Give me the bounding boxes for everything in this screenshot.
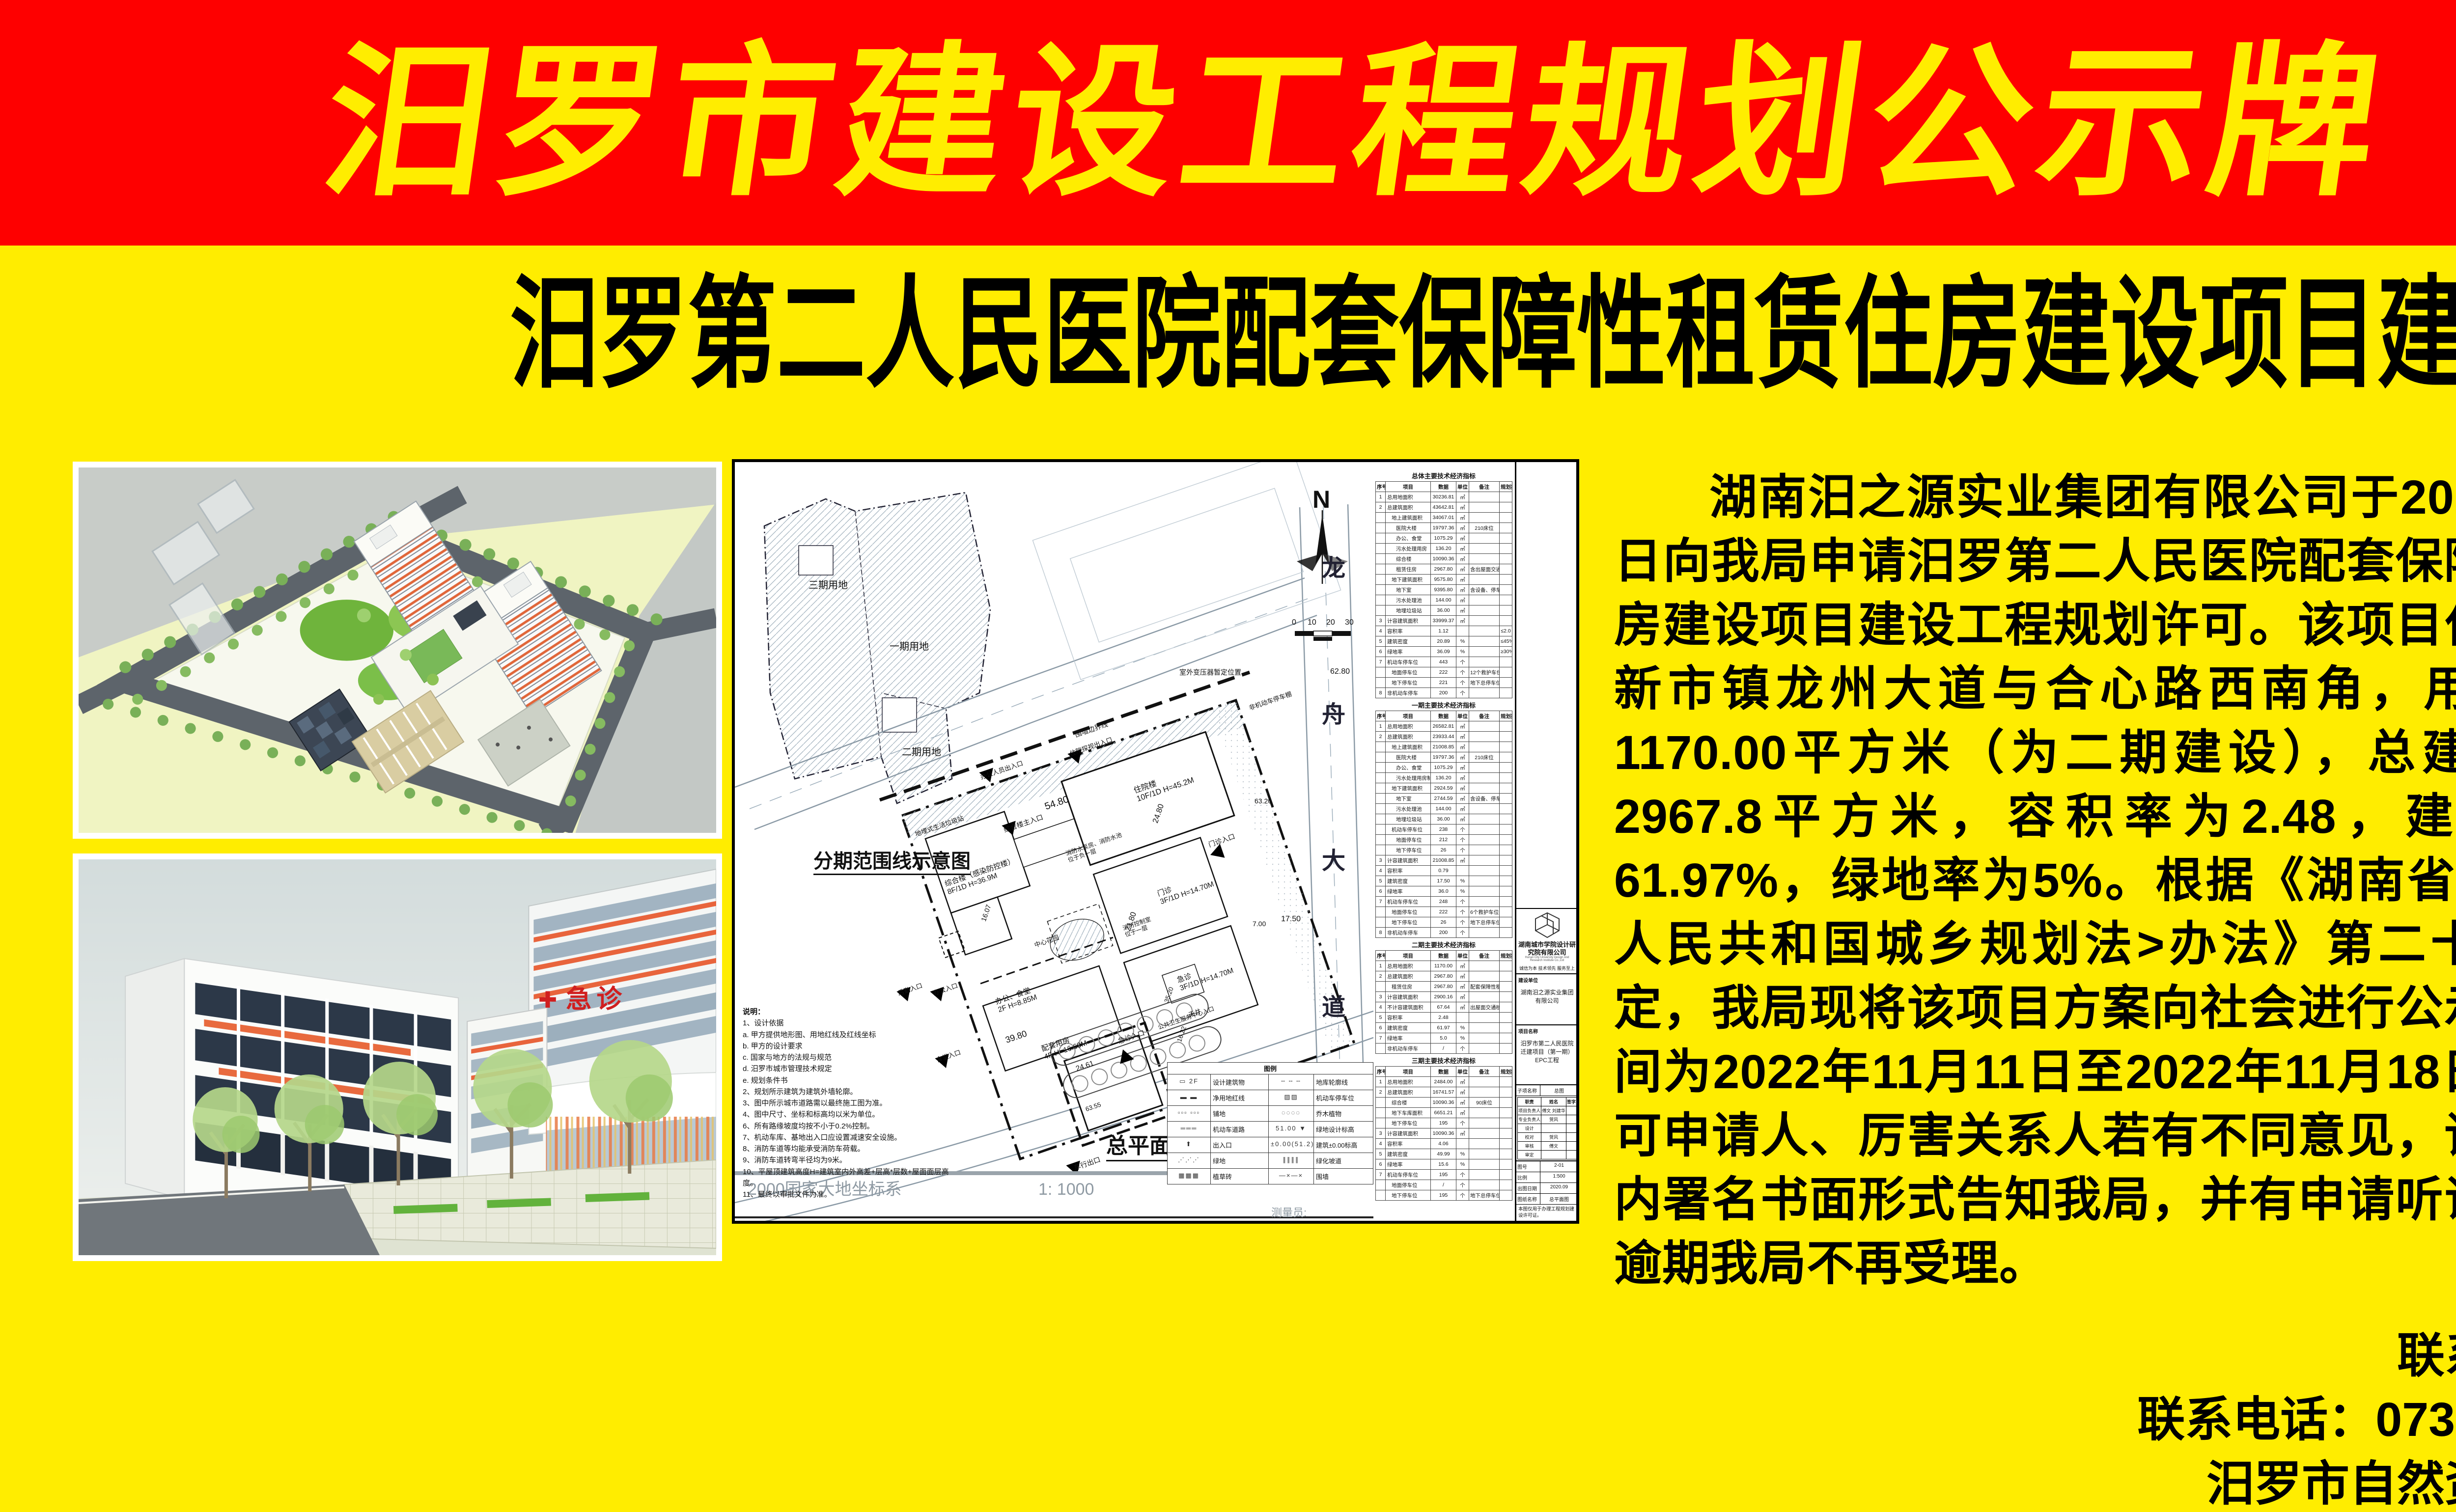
indicator-cell	[1469, 657, 1500, 667]
plan-annotation: 30	[1345, 618, 1354, 627]
indicator-row: 地下停车位26个	[1376, 845, 1512, 855]
sign-cell: 设计	[1518, 1124, 1541, 1133]
road-name-longzhou-avenue: 龙舟大道	[1313, 555, 1348, 1141]
indicator-cell	[1469, 1023, 1500, 1033]
indicator-cell: 地埋垃圾站	[1386, 814, 1431, 825]
indicator-cell	[1500, 961, 1512, 971]
indicator-cell: 地面停车位	[1386, 1180, 1431, 1190]
title-block-note: 本图仅用于办理工程规划建设许可证。	[1516, 1205, 1578, 1221]
indicator-row: 3计容建筑面积10090.36㎡	[1376, 1128, 1512, 1139]
indicator-cell	[1500, 605, 1512, 616]
indicator-cell: ㎡	[1456, 1108, 1469, 1118]
indicator-row: 地下车库面积6651.21㎡	[1376, 1108, 1512, 1118]
indicator-row: 2总建筑面积2967.80㎡	[1376, 971, 1512, 982]
legend-label: 绿地设计标高	[1314, 1122, 1373, 1137]
indicator-row: 地埋垃圾站36.00㎡	[1376, 814, 1512, 825]
indicator-cell	[1500, 825, 1512, 835]
indicator-cell	[1376, 907, 1386, 917]
indicator-cell	[1469, 688, 1500, 698]
legend-row: ⬆出入口±0.00(51.2)▽建筑±0.00标高	[1168, 1137, 1373, 1153]
indicator-cell	[1469, 544, 1500, 554]
indicator-cell: 计容建筑面积	[1386, 855, 1431, 866]
indicator-header: 数据	[1431, 711, 1456, 721]
indicator-cell: 容积率	[1386, 626, 1431, 636]
legend-symbol: ╌ ╌ ╌	[1269, 1074, 1314, 1090]
plan-note-line: 10、平屋顶建筑高度H=建筑室内外高差+层高*层数+屋面面层高度。	[743, 1166, 949, 1189]
indicator-cell: 1	[1376, 961, 1386, 971]
plan-note-line: 2、规划所示建筑为建筑外墙轮廓。	[743, 1086, 949, 1098]
red-cross-icon: ✚	[538, 987, 562, 1013]
indicator-cell	[1469, 1128, 1500, 1139]
indicator-cell: 5	[1376, 876, 1386, 886]
title-block-spacer	[1516, 462, 1578, 909]
indicator-cell: ㎡	[1456, 1098, 1469, 1108]
indicator-cell: 2.48	[1431, 1013, 1456, 1023]
indicator-cell: 36.00	[1431, 814, 1456, 825]
indicator-cell: 248	[1431, 897, 1456, 907]
indicator-cell: 2	[1376, 502, 1386, 513]
indicator-cell: 绿地率	[1386, 1159, 1431, 1170]
indicator-cell	[1376, 595, 1386, 605]
legend-label: 植草砖	[1211, 1169, 1269, 1184]
indicator-header: 备注	[1469, 482, 1500, 492]
indicator-cell: 容积率	[1386, 1139, 1431, 1149]
sign-cell	[1541, 1151, 1566, 1159]
indicator-cell: 2	[1376, 971, 1386, 982]
indicator-cell	[1500, 544, 1512, 554]
indicator-cell	[1376, 773, 1386, 783]
indicator-cell	[1500, 564, 1512, 575]
indicator-header: 备注	[1469, 711, 1500, 721]
indicator-cell	[1469, 1170, 1500, 1180]
indicator-cell: 污水处理池	[1386, 595, 1431, 605]
indicator-header: 序号	[1376, 951, 1386, 961]
indicator-row: 6建筑密度61.97%	[1376, 1023, 1512, 1033]
indicator-cell: 医院大楼	[1386, 752, 1431, 763]
indicator-cell: 总建筑面积	[1386, 502, 1431, 513]
indicator-cell: /	[1431, 1180, 1456, 1190]
indicator-cell	[1500, 876, 1512, 886]
indicator-cell	[1500, 554, 1512, 564]
indicator-cell: 238	[1431, 825, 1456, 835]
indicator-cell	[1376, 845, 1386, 855]
indicator-cell: 20.89	[1431, 636, 1456, 647]
indicator-header: 单位	[1456, 951, 1469, 961]
subtitle-text: 汨罗第二人民医院配套保障性租赁住房建设项目建设工程规划批前公示	[510, 264, 2456, 404]
indicator-cell: 计容建筑面积	[1386, 992, 1431, 1002]
sign-cell	[1566, 1142, 1576, 1151]
plan-note-line: b. 甲方的设计要求	[743, 1041, 949, 1052]
indicator-cell: 1075.29	[1431, 533, 1456, 544]
sheet-info-label: 图号	[1516, 1161, 1540, 1172]
indicator-cell: 4.06	[1431, 1139, 1456, 1149]
aerial-rendering-image	[73, 462, 722, 839]
indicator-cell: 个	[1456, 1180, 1469, 1190]
indicator-cell	[1500, 992, 1512, 1002]
indicator-cell: ㎡	[1456, 585, 1469, 595]
indicator-cell: ㎡	[1456, 605, 1469, 616]
indicator-cell: 144.00	[1431, 595, 1456, 605]
sign-cell: 傅文	[1541, 1142, 1566, 1151]
plan-note-line: 7、机动车库、基地出入口应设置减速安全设施。	[743, 1132, 949, 1143]
notice-text-block: 湖南汨之源实业集团有限公司于2022年11月9日向我局申请汨罗第二人民医院配套保…	[1614, 466, 2456, 1512]
indicator-row: 地上建筑面积34067.01㎡	[1376, 513, 1512, 523]
sheet-info-label: 图纸名称	[1516, 1194, 1540, 1204]
indicator-cell: %	[1456, 1159, 1469, 1170]
sheet-info-value: 2020.09	[1540, 1183, 1578, 1193]
indicator-cell: 43642.81	[1431, 502, 1456, 513]
sheet-info-value: 总平面图	[1540, 1194, 1578, 1204]
indicator-cell: 5.0	[1431, 1033, 1456, 1044]
indicator-cell: 地下停车位	[1386, 845, 1431, 855]
indicator-row: 6绿地率36.0%	[1376, 886, 1512, 897]
design-institute-cell: 湖南城市学院设计研究院有限公司 Hunan City University De…	[1516, 909, 1578, 974]
indicator-cell: 210床位	[1469, 752, 1500, 763]
indicator-cell: ㎡	[1456, 992, 1469, 1002]
plan-note-line: d. 汨罗市城市管理技术规定	[743, 1063, 949, 1074]
plan-legend: 图例 ▭ 2F设计建筑物╌ ╌ ╌地库轮廓线▬ ▬净用地红线▨▨机动车停车位▫▫…	[1167, 1062, 1373, 1184]
indicator-cell	[1469, 1087, 1500, 1098]
indicator-row: 地面停车位/个	[1376, 1180, 1512, 1190]
indicator-cell: 3	[1376, 992, 1386, 1002]
legend-label: 机动车停车位	[1314, 1090, 1373, 1105]
indicator-cell: 200	[1431, 928, 1456, 938]
legend-label: 地库轮廓线	[1314, 1074, 1373, 1090]
indicator-cell: 个	[1456, 688, 1469, 698]
indicator-cell: ㎡	[1456, 1077, 1469, 1087]
indicator-cell	[1469, 721, 1500, 732]
indicator-row: 5建筑密度49.99%	[1376, 1149, 1512, 1159]
indicator-cell: ㎡	[1456, 575, 1469, 585]
indicator-row: 7绿地率5.0%	[1376, 1033, 1512, 1044]
indicator-row: 医院大楼19797.36㎡210床位	[1376, 752, 1512, 763]
indicator-cell	[1469, 804, 1500, 814]
indicator-cell	[1469, 928, 1500, 938]
indicator-cell: ㎡	[1456, 502, 1469, 513]
indicator-cell: 非机动车停车	[1386, 928, 1431, 938]
sheet-info-row: 图号2-01	[1516, 1161, 1578, 1172]
indicator-cell: 地下停车位	[1386, 678, 1431, 688]
indicator-cell: 195	[1431, 1118, 1456, 1128]
sheet-info-row: 比例1:500	[1516, 1172, 1578, 1183]
contact-block: 联系人：吴乐 联系电话：0730-5244129 汨罗市自然资源局监制	[1614, 1328, 2456, 1512]
indicator-cell	[1469, 897, 1500, 907]
indicator-cell: 17.50	[1431, 876, 1456, 886]
plan-annotation: 10	[1308, 618, 1316, 627]
indicator-cell	[1469, 1139, 1500, 1149]
indicator-row: 办公、食堂1075.29㎡	[1376, 533, 1512, 544]
indicator-cell: 36.0	[1431, 886, 1456, 897]
indicator-cell: 6个救护车位	[1469, 907, 1500, 917]
indicator-cell: 212	[1431, 835, 1456, 845]
indicator-cell: 医院大楼	[1386, 523, 1431, 533]
indicator-cell	[1469, 626, 1500, 636]
indicator-header: 单位	[1456, 1067, 1469, 1077]
sign-cell	[1541, 1124, 1566, 1133]
sign-cell: 校对	[1518, 1133, 1541, 1142]
indicator-cell	[1469, 971, 1500, 982]
indicator-row: 污水处理用房制氧机房136.20㎡	[1376, 773, 1512, 783]
indicator-cell	[1456, 1013, 1469, 1023]
indicator-cell	[1376, 1190, 1386, 1201]
subitem-value: 总图	[1540, 1085, 1578, 1096]
indicator-cell	[1500, 1098, 1512, 1108]
indicator-cell	[1376, 523, 1386, 533]
indicator-cell	[1469, 1118, 1500, 1128]
indicator-cell: 地下总停车位	[1469, 1190, 1500, 1201]
indicator-cell: 2	[1376, 732, 1386, 742]
indicator-cell: %	[1456, 1033, 1469, 1044]
indicator-cell: 地下建筑面积	[1386, 575, 1431, 585]
indicator-cell	[1469, 886, 1500, 897]
indicator-cell: 个	[1456, 897, 1469, 907]
indicator-cell	[1469, 647, 1500, 657]
indicator-row: 地下室2744.59㎡含设备、停车库	[1376, 794, 1512, 804]
indicator-cell: ㎡	[1456, 492, 1469, 502]
indicator-cell: 非机动车停车	[1386, 688, 1431, 698]
indicator-header: 序号	[1376, 711, 1386, 721]
indicator-header: 数据	[1431, 1067, 1456, 1077]
indicator-row: 6绿地率15.6%	[1376, 1159, 1512, 1170]
sign-cell: 专业负责人	[1518, 1115, 1541, 1124]
indicator-cell	[1469, 554, 1500, 564]
indicator-cell	[1500, 1077, 1512, 1087]
indicator-row: 地面停车位212个	[1376, 835, 1512, 845]
indicator-cell: ㎡	[1456, 752, 1469, 763]
indicator-cell	[1500, 866, 1512, 876]
indicator-cell: 地下停车位	[1386, 917, 1431, 928]
indicator-cell: ≥30%	[1500, 647, 1512, 657]
plan-annotation: 63.20	[1255, 797, 1272, 805]
sign-row: 审定	[1518, 1151, 1577, 1159]
indicator-cell: 个	[1456, 667, 1469, 678]
indicator-cell	[1500, 678, 1512, 688]
indicator-cell: 地埋垃圾站	[1386, 605, 1431, 616]
indicator-cell	[1469, 855, 1500, 866]
indicator-cell: 23933.44	[1431, 732, 1456, 742]
indicator-cell	[1469, 533, 1500, 544]
indicator-row: 1总用地面积1170.00㎡	[1376, 961, 1512, 971]
indicator-row: 1总用地面积30236.81㎡	[1376, 492, 1512, 502]
sheet-info-label: 出图日期	[1516, 1183, 1540, 1193]
legend-row: ═══机动车道路51.00 ▼绿地设计标高	[1168, 1122, 1373, 1137]
legend-label: 机动车道路	[1211, 1122, 1269, 1137]
aerial-rendering-graphic	[79, 467, 716, 833]
indicator-cell	[1500, 855, 1512, 866]
legend-row: ▦▦▦植草砖—×—×围墙	[1168, 1169, 1373, 1184]
indicator-cell: ㎡	[1456, 982, 1469, 992]
indicator-cell	[1469, 732, 1500, 742]
legend-row: ⋰⋰⋰绿地∥∥∥∥绿化坡道	[1168, 1153, 1373, 1169]
indicator-cell	[1469, 876, 1500, 886]
indicator-cell: 4	[1376, 1002, 1386, 1013]
indicator-cell: 机动车停车位	[1386, 825, 1431, 835]
indicator-row: 1总用地面积2484.00㎡	[1376, 1077, 1512, 1087]
indicator-cell	[1500, 1013, 1512, 1023]
indicator-cell: ㎡	[1456, 1002, 1469, 1013]
indicator-cell: 443	[1431, 657, 1456, 667]
indicator-cell: 34067.01	[1431, 513, 1456, 523]
project-cell: 项目名称 汨罗市第二人民医院迁建项目（第一期）EPC工程	[1516, 1025, 1578, 1085]
indicator-cell: 个	[1456, 835, 1469, 845]
indicator-header: 规划控制指标	[1500, 951, 1512, 961]
indicator-cell: 144.00	[1431, 804, 1456, 814]
indicator-cell: 19797.36	[1431, 523, 1456, 533]
indicator-cell: 污水处理用房制氧机房	[1386, 773, 1431, 783]
sign-cell	[1566, 1133, 1576, 1142]
indicator-cell	[1469, 961, 1500, 971]
sign-row: 校对贺风	[1518, 1133, 1577, 1142]
street-rendering-graphic	[79, 859, 716, 1255]
legend-label: 出入口	[1211, 1137, 1269, 1153]
indicator-cell: 建筑密度	[1386, 1149, 1431, 1159]
project-label: 项目名称	[1518, 1027, 1576, 1035]
indicator-cell: 绿地率	[1386, 886, 1431, 897]
indicator-cell: ㎡	[1456, 523, 1469, 533]
legend-symbol: ▦▦▦	[1168, 1169, 1211, 1184]
indicator-cell: 地上建筑面积	[1386, 742, 1431, 752]
indicator-cell: ≤45%	[1500, 636, 1512, 647]
plan-note-line: 8、消防车道等均能承受消防车荷载。	[743, 1143, 949, 1155]
indicator-cell: ㎡	[1456, 971, 1469, 982]
contact-person: 联系人：吴乐	[1614, 1328, 2456, 1384]
plan-note-line: 3、图中所示城市道路需以最终施工图为准。	[743, 1098, 949, 1109]
plan-annotation: 7.00	[1253, 920, 1266, 928]
indicator-cell	[1376, 575, 1386, 585]
plan-notes-title: 说明：	[743, 1006, 949, 1017]
indicator-cell	[1500, 907, 1512, 917]
indicator-header: 项目	[1386, 482, 1431, 492]
indicator-cell	[1376, 678, 1386, 688]
indicator-cell: 总用地面积	[1386, 721, 1431, 732]
design-institute-logo-icon	[1532, 911, 1563, 939]
plan-annotation: 0	[1292, 618, 1296, 627]
indicator-cell: 33999.37	[1431, 616, 1456, 626]
indicator-cell: 总建筑面积	[1386, 1087, 1431, 1098]
indicator-row: 5建筑密度20.89%≤45%	[1376, 636, 1512, 647]
indicator-cell: 15.6	[1431, 1159, 1456, 1170]
indicator-cell: ㎡	[1456, 1087, 1469, 1098]
indicator-cell: 个	[1456, 825, 1469, 835]
indicator-row: 地下停车位195个地下总停车位	[1376, 1190, 1512, 1201]
indicator-row: 8非机动车停车200个	[1376, 928, 1512, 938]
indicator-cell: 个	[1456, 1170, 1469, 1180]
indicator-cell	[1500, 523, 1512, 533]
legend-symbol: ▫▫▫ ▫▫▫	[1168, 1106, 1211, 1121]
indicator-row: 综合楼10090.36㎡	[1376, 554, 1512, 564]
indicator-table: 序号项目数据单位备注规划控制指标1总用地面积26582.81㎡2总建筑面积239…	[1375, 711, 1512, 938]
indicator-cell	[1469, 992, 1500, 1002]
indicator-row: 医院大楼19797.36㎡210床位	[1376, 523, 1512, 533]
indicator-cell: 个	[1456, 1044, 1469, 1054]
indicator-row: 污水处理用房136.20㎡	[1376, 544, 1512, 554]
sign-cell	[1566, 1115, 1576, 1124]
indicator-row: 地下室9395.80㎡含设备、停车库	[1376, 585, 1512, 595]
indicator-cell: 个	[1456, 1118, 1469, 1128]
plan-annotation: 三期用地	[809, 580, 848, 591]
indicator-header: 数据	[1431, 482, 1456, 492]
indicator-row: 6绿地率36.09%≥30%	[1376, 647, 1512, 657]
indicator-header: 序号	[1376, 482, 1386, 492]
indicator-row: 7机动车停车位248个	[1376, 897, 1512, 907]
design-institute-name: 湖南城市学院设计研究院有限公司	[1518, 941, 1576, 956]
indicator-cell: 污水处理池	[1386, 804, 1431, 814]
legend-row: ▫▫▫ ▫▫▫铺地◌◌◌◌乔木植物	[1168, 1106, 1373, 1122]
indicator-cell	[1500, 492, 1512, 502]
indicator-cell	[1500, 732, 1512, 742]
indicator-cell: 1.12	[1431, 626, 1456, 636]
indicator-row: 3计容建筑面积21008.85㎡	[1376, 855, 1512, 866]
indicator-cell	[1469, 575, 1500, 585]
indicator-cell: 7	[1376, 1033, 1386, 1044]
legend-symbol: —×—×	[1269, 1169, 1314, 1184]
plan-note-line: e. 规划条件书	[743, 1075, 949, 1086]
indicator-row: 3计容建筑面积33999.37㎡	[1376, 616, 1512, 626]
indicator-cell: 容积率	[1386, 866, 1431, 876]
indicator-cell: 222	[1431, 667, 1456, 678]
legend-label: 乔木植物	[1314, 1106, 1373, 1121]
indicator-row: 4容积率1.12≤2.0	[1376, 626, 1512, 636]
indicator-cell	[1469, 595, 1500, 605]
indicator-cell: 地面停车位	[1386, 667, 1431, 678]
indicator-cell	[1500, 845, 1512, 855]
design-institute-name-en: Hunan City University Design And Researc…	[1518, 956, 1576, 962]
owner-label: 建设单位	[1518, 976, 1576, 984]
indicator-cell	[1500, 688, 1512, 698]
indicator-cell	[1500, 1044, 1512, 1054]
indicator-cell: 地下总停车位	[1469, 917, 1500, 928]
indicator-cell	[1469, 1180, 1500, 1190]
indicator-cell: 2484.00	[1431, 1077, 1456, 1087]
plan-annotation: 62.80	[1330, 667, 1350, 676]
indicator-cell	[1500, 721, 1512, 732]
indicator-cell: 7	[1376, 1170, 1386, 1180]
sign-cell: 贺风	[1541, 1133, 1566, 1142]
indicator-cell: 136.20	[1431, 544, 1456, 554]
indicator-cell	[1376, 742, 1386, 752]
sheet-info-rows: 图号2-01比例1:500出图日期2020.09图纸名称总平面图	[1516, 1161, 1578, 1205]
indicator-cell: 136.20	[1431, 773, 1456, 783]
indicator-cell	[1376, 585, 1386, 595]
contact-phone: 联系电话：0730-5244129	[1614, 1392, 2456, 1448]
indicator-cell: 2900.16	[1431, 992, 1456, 1002]
indicator-cell: ㎡	[1456, 814, 1469, 825]
indicator-table-title: 三期主要技术经济指标	[1375, 1054, 1512, 1066]
indicator-cell: 出屋面交通核	[1469, 1002, 1500, 1013]
indicator-cell: 机动车停车位	[1386, 897, 1431, 907]
indicator-cell: 地下室	[1386, 794, 1431, 804]
indicator-cell	[1500, 752, 1512, 763]
indicator-table: 序号项目数据单位备注规划控制指标1总用地面积1170.00㎡2总建筑面积2967…	[1375, 950, 1512, 1054]
indicator-cell: 90床位	[1469, 1098, 1500, 1108]
indicator-cell	[1500, 794, 1512, 804]
indicator-cell: 计容建筑面积	[1386, 616, 1431, 626]
indicator-cell	[1469, 636, 1500, 647]
legend-symbol: ◌◌◌◌	[1269, 1106, 1314, 1121]
indicator-cell	[1469, 1108, 1500, 1118]
plan-annotation: 二期用地	[902, 747, 941, 758]
indicator-cell: 总用地面积	[1386, 961, 1431, 971]
indicator-cell: 67.64	[1431, 1002, 1456, 1013]
indicator-cell: 6	[1376, 647, 1386, 657]
indicator-row: 污水处理池144.00㎡	[1376, 595, 1512, 605]
indicator-cell	[1500, 1033, 1512, 1044]
owner-name: 湖南汨之源实业集团有限公司	[1518, 989, 1576, 1005]
indicator-cell	[1500, 595, 1512, 605]
plan-annotation: 1: 1000	[1038, 1180, 1094, 1199]
indicator-cell	[1376, 667, 1386, 678]
indicator-cell: 个	[1456, 678, 1469, 688]
